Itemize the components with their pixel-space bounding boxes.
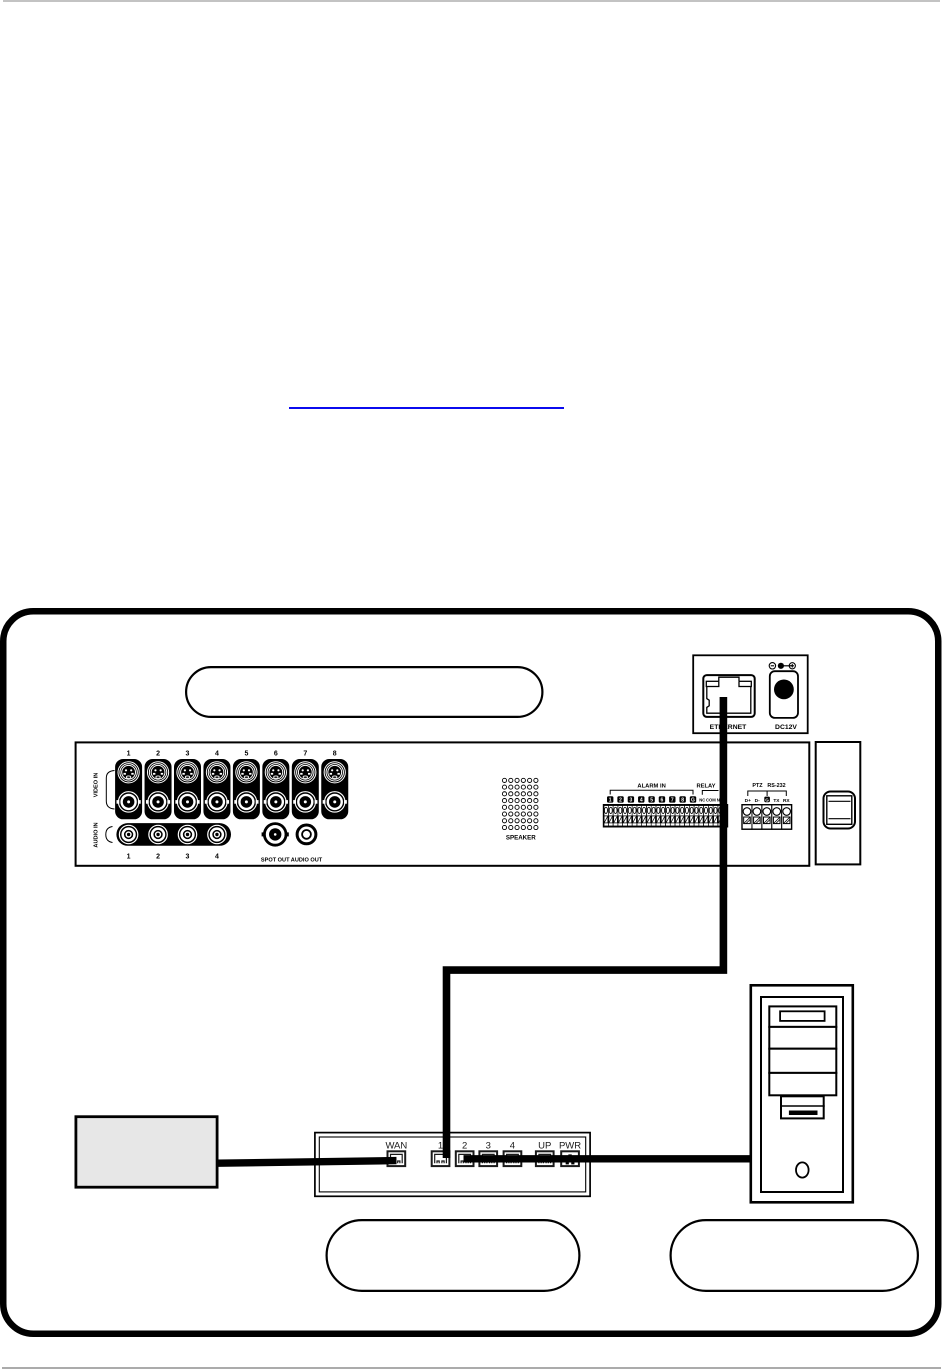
svg-text:SPOT OUT: SPOT OUT <box>261 858 290 864</box>
svg-text:3: 3 <box>486 1140 491 1151</box>
svg-text:1: 1 <box>609 798 612 804</box>
svg-text:G: G <box>765 797 769 802</box>
svg-text:1: 1 <box>438 1140 443 1151</box>
svg-text:ETHERNET: ETHERNET <box>710 724 747 731</box>
svg-text:SPEAKER: SPEAKER <box>506 835 536 842</box>
svg-text:3: 3 <box>186 751 190 758</box>
svg-text:RS-232: RS-232 <box>767 783 785 789</box>
svg-text:AUDIO OUT: AUDIO OUT <box>291 858 323 864</box>
svg-text:TX: TX <box>773 798 780 804</box>
svg-text:3: 3 <box>186 854 190 861</box>
svg-text:N: N <box>717 798 720 803</box>
svg-text:UP: UP <box>538 1140 551 1151</box>
svg-text:PWR: PWR <box>559 1140 581 1151</box>
svg-text:4: 4 <box>640 798 643 804</box>
svg-text:7: 7 <box>303 751 307 758</box>
svg-text:6: 6 <box>661 798 664 804</box>
svg-text:4: 4 <box>215 751 219 758</box>
svg-text:3: 3 <box>630 798 633 804</box>
svg-text:8: 8 <box>333 751 337 758</box>
svg-text:5: 5 <box>650 798 653 804</box>
svg-text:G: G <box>691 798 695 804</box>
svg-text:WAN: WAN <box>385 1140 407 1151</box>
svg-text:NC: NC <box>699 798 705 803</box>
svg-text:PTZ: PTZ <box>752 783 763 789</box>
svg-text:AUDIO IN: AUDIO IN <box>94 822 100 847</box>
svg-text:RELAY: RELAY <box>696 784 715 790</box>
svg-text:5: 5 <box>244 751 248 758</box>
svg-text:COM: COM <box>706 798 716 803</box>
svg-text:8: 8 <box>681 798 684 804</box>
svg-text:D-: D- <box>755 798 760 804</box>
svg-text:1: 1 <box>127 751 131 758</box>
svg-text:6: 6 <box>274 751 278 758</box>
svg-text:2: 2 <box>156 751 160 758</box>
svg-text:1: 1 <box>127 854 131 861</box>
svg-text:ALARM IN: ALARM IN <box>637 784 665 790</box>
svg-text:4: 4 <box>215 854 219 861</box>
svg-text:RX: RX <box>783 798 790 804</box>
svg-text:DC12V: DC12V <box>775 724 797 731</box>
svg-text:7: 7 <box>671 798 674 804</box>
svg-text:4: 4 <box>510 1140 515 1151</box>
svg-text:2: 2 <box>619 798 622 804</box>
svg-text:D+: D+ <box>745 798 751 804</box>
svg-text:VIDEO IN: VIDEO IN <box>94 773 100 798</box>
svg-text:2: 2 <box>156 854 160 861</box>
svg-text:2: 2 <box>462 1140 467 1151</box>
